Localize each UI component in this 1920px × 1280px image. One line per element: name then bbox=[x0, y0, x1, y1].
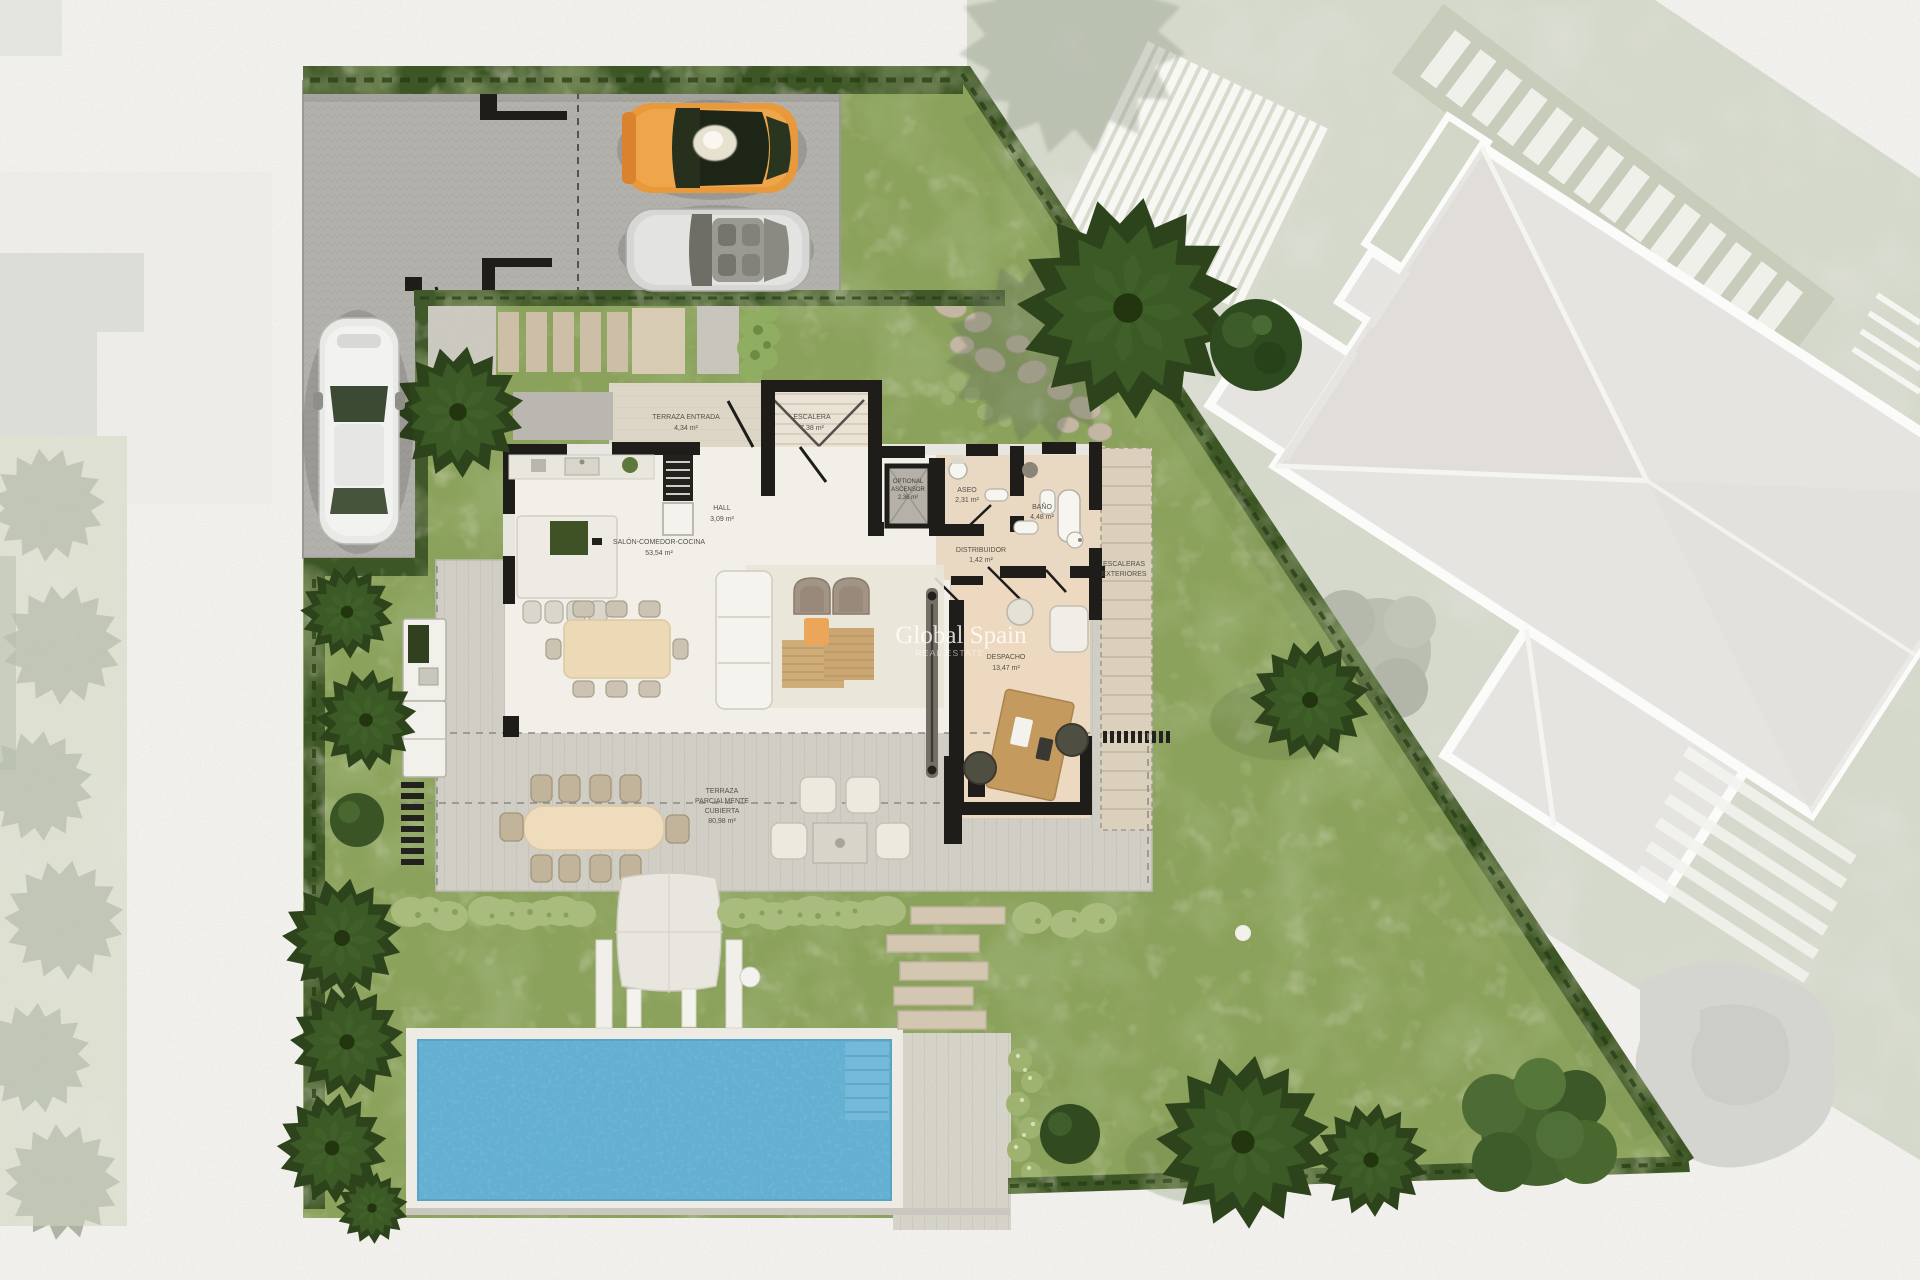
svg-text:80,98 m²: 80,98 m² bbox=[708, 818, 736, 825]
svg-text:2,31 m²: 2,31 m² bbox=[955, 497, 979, 504]
svg-text:13,47 m²: 13,47 m² bbox=[992, 665, 1020, 672]
svg-text:Global Spain: Global Spain bbox=[895, 622, 1027, 649]
svg-text:TERRAZA ENTRADA: TERRAZA ENTRADA bbox=[652, 414, 720, 421]
svg-text:3,09 m²: 3,09 m² bbox=[710, 516, 734, 523]
svg-text:PARCIALMENTE: PARCIALMENTE bbox=[695, 798, 749, 805]
svg-text:4,34 m²: 4,34 m² bbox=[674, 425, 698, 432]
svg-text:53,54 m²: 53,54 m² bbox=[645, 550, 673, 557]
svg-text:TERRAZA: TERRAZA bbox=[706, 788, 739, 795]
svg-text:7,38 m²: 7,38 m² bbox=[800, 425, 824, 432]
svg-text:ESCALERAS: ESCALERAS bbox=[1103, 561, 1145, 568]
svg-text:2,36 m²: 2,36 m² bbox=[898, 495, 918, 501]
svg-text:HALL: HALL bbox=[713, 505, 731, 512]
svg-text:1,42 m²: 1,42 m² bbox=[969, 557, 993, 564]
svg-text:DESPACHO: DESPACHO bbox=[987, 654, 1026, 661]
svg-text:EXTERIORES: EXTERIORES bbox=[1101, 571, 1146, 578]
svg-text:ESCALERA: ESCALERA bbox=[793, 414, 831, 421]
svg-text:DISTRIBUIDOR: DISTRIBUIDOR bbox=[956, 547, 1006, 554]
svg-text:ASCENSOR: ASCENSOR bbox=[891, 487, 925, 493]
svg-text:CUBIERTA: CUBIERTA bbox=[705, 808, 740, 815]
svg-text:SALÓN-COMEDOR-COCINA: SALÓN-COMEDOR-COCINA bbox=[613, 537, 706, 546]
svg-text:4,48 m²: 4,48 m² bbox=[1030, 514, 1054, 521]
svg-text:BAÑO: BAÑO bbox=[1032, 502, 1052, 511]
svg-text:ASEO: ASEO bbox=[957, 487, 977, 494]
svg-text:OPTIONAL: OPTIONAL bbox=[893, 479, 924, 485]
svg-text:REAL ESTATE: REAL ESTATE bbox=[915, 648, 984, 658]
